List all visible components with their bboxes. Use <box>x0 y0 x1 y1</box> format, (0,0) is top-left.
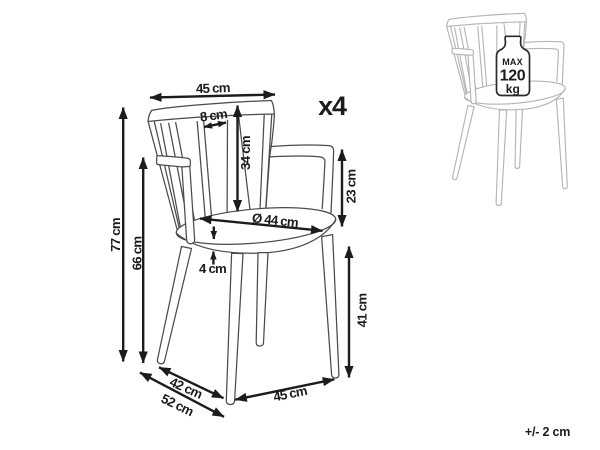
svg-text:x4: x4 <box>318 91 347 121</box>
svg-text:MAX: MAX <box>502 57 523 67</box>
svg-text:41 cm: 41 cm <box>354 294 369 328</box>
svg-text:45 cm: 45 cm <box>272 383 308 404</box>
svg-text:77 cm: 77 cm <box>108 218 123 252</box>
svg-text:34 cm: 34 cm <box>238 136 253 170</box>
svg-text:+/- 2 cm: +/- 2 cm <box>525 425 570 439</box>
svg-text:23 cm: 23 cm <box>343 170 358 204</box>
svg-text:8 cm: 8 cm <box>199 106 228 125</box>
svg-text:4 cm: 4 cm <box>199 261 226 276</box>
svg-text:kg: kg <box>506 82 520 96</box>
svg-text:45 cm: 45 cm <box>196 80 230 96</box>
svg-text:66 cm: 66 cm <box>129 237 144 271</box>
